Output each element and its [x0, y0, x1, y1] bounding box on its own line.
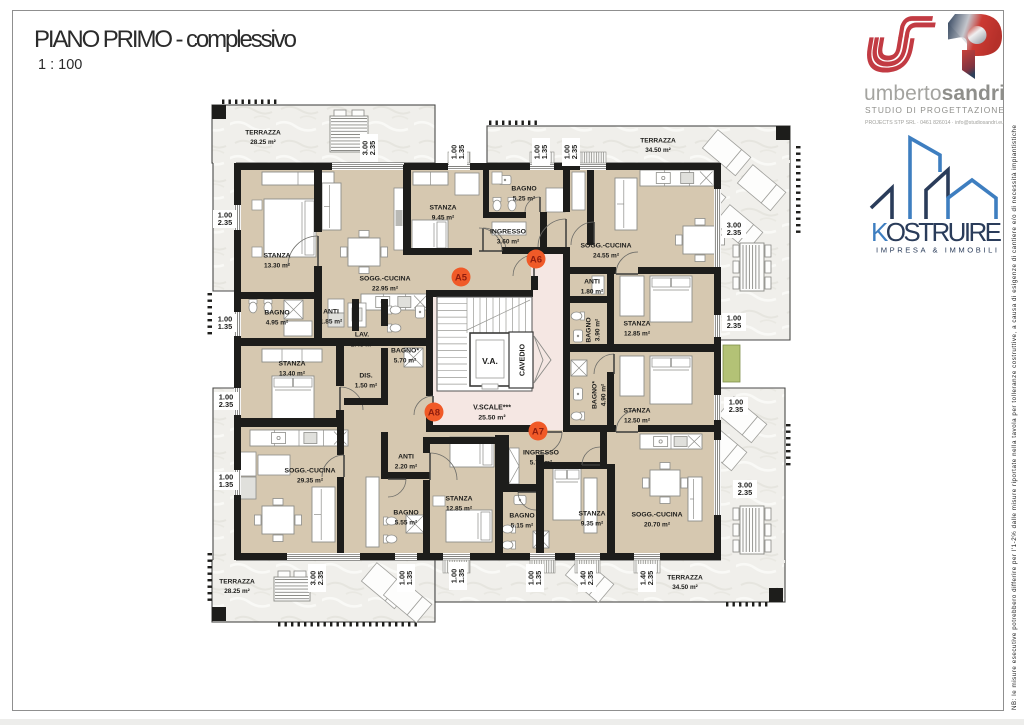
svg-text:5.70 m²: 5.70 m² — [394, 357, 417, 364]
svg-text:umbertosandri: umbertosandri — [864, 82, 1005, 105]
svg-text:BAGNO*: BAGNO* — [591, 381, 598, 409]
svg-text:IMPRESA & IMMOBILI: IMPRESA & IMMOBILI — [876, 246, 997, 255]
svg-text:1 : 100: 1 : 100 — [38, 57, 82, 73]
svg-text:9.45 m²: 9.45 m² — [432, 214, 455, 221]
svg-text:1.85 m²: 1.85 m² — [320, 318, 343, 325]
svg-text:5.55 m²: 5.55 m² — [395, 519, 418, 526]
svg-text:4.90 m²: 4.90 m² — [600, 383, 607, 406]
svg-text:3.90 m²: 3.90 m² — [594, 318, 601, 341]
svg-text:SOGG.-CUCINA: SOGG.-CUCINA — [285, 467, 336, 474]
svg-text:2.35: 2.35 — [219, 400, 233, 409]
svg-text:BAGNO: BAGNO — [585, 317, 592, 342]
svg-text:STUDIO DI PROGETTAZIONE: STUDIO DI PROGETTAZIONE — [865, 105, 1004, 115]
svg-text:STANZA: STANZA — [623, 320, 650, 327]
svg-text:25.50 m²: 25.50 m² — [478, 414, 506, 421]
svg-text:29.35 m²: 29.35 m² — [297, 477, 324, 484]
svg-text:4.95 m²: 4.95 m² — [266, 319, 289, 326]
svg-text:SOGG.-CUCINA: SOGG.-CUCINA — [632, 511, 683, 518]
svg-text:2.35: 2.35 — [646, 571, 655, 585]
svg-text:CAVEDIO: CAVEDIO — [518, 343, 527, 376]
svg-text:A6: A6 — [530, 254, 542, 265]
svg-text:V.SCALE***: V.SCALE*** — [473, 404, 511, 411]
svg-text:12.85 m²: 12.85 m² — [624, 330, 651, 337]
svg-text:ANTI: ANTI — [398, 453, 414, 460]
svg-text:SOGG.-CUCINA: SOGG.-CUCINA — [360, 275, 411, 282]
svg-text:28.25 m²: 28.25 m² — [224, 588, 250, 595]
svg-text:1.35: 1.35 — [457, 145, 466, 159]
svg-text:2.35: 2.35 — [727, 228, 741, 237]
svg-text:5.25 m²: 5.25 m² — [513, 195, 536, 202]
svg-text:28.25 m²: 28.25 m² — [250, 139, 276, 146]
svg-text:A7: A7 — [532, 426, 544, 437]
svg-text:INGRESSO: INGRESSO — [523, 449, 559, 456]
svg-text:9.35 m²: 9.35 m² — [581, 520, 604, 527]
svg-text:2.35: 2.35 — [316, 571, 325, 585]
svg-text:20.70 m²: 20.70 m² — [644, 521, 671, 528]
svg-text:34.50 m²: 34.50 m² — [645, 147, 671, 154]
svg-text:SOGG.-CUCINA: SOGG.-CUCINA — [581, 242, 632, 249]
svg-text:1.35: 1.35 — [540, 145, 549, 159]
svg-text:12.85 m²: 12.85 m² — [446, 505, 473, 512]
svg-text:PIANO PRIMO - complessivo: PIANO PRIMO - complessivo — [34, 26, 297, 53]
svg-text:STANZA: STANZA — [263, 252, 290, 259]
svg-text:1.35: 1.35 — [219, 480, 233, 489]
svg-text:ANTI: ANTI — [584, 278, 600, 285]
svg-text:2.45 m²: 2.45 m² — [351, 341, 374, 348]
svg-text:1.35: 1.35 — [534, 571, 543, 585]
svg-text:TERRAZZA: TERRAZZA — [640, 137, 676, 144]
svg-text:TERRAZZA: TERRAZZA — [667, 574, 703, 581]
svg-text:BAGNO: BAGNO — [511, 185, 536, 192]
svg-text:A8: A8 — [428, 407, 440, 418]
svg-text:22.95 m²: 22.95 m² — [372, 285, 399, 292]
svg-text:2.35: 2.35 — [738, 488, 752, 497]
svg-text:2.20 m²: 2.20 m² — [395, 463, 418, 470]
svg-text:13.30 m²: 13.30 m² — [264, 262, 291, 269]
svg-text:BAGNO: BAGNO — [509, 512, 534, 519]
svg-text:13.40 m²: 13.40 m² — [279, 370, 306, 377]
svg-text:INGRESSO: INGRESSO — [490, 228, 526, 235]
svg-text:3.60 m²: 3.60 m² — [497, 238, 520, 245]
svg-text:2.35: 2.35 — [368, 141, 377, 155]
svg-text:1.35: 1.35 — [457, 569, 466, 583]
svg-text:5.70 m²: 5.70 m² — [530, 459, 553, 466]
svg-text:5.15 m²: 5.15 m² — [511, 522, 534, 529]
svg-text:BAGNO*: BAGNO* — [391, 347, 419, 354]
svg-text:24.55 m²: 24.55 m² — [593, 252, 620, 259]
svg-text:PROJECTS STP SRL · 0461 826014: PROJECTS STP SRL · 0461 826014 · info@st… — [865, 120, 1004, 126]
svg-text:BAGNO: BAGNO — [393, 509, 418, 516]
svg-text:34.50 m²: 34.50 m² — [672, 584, 698, 591]
svg-text:12.50 m²: 12.50 m² — [624, 417, 651, 424]
svg-text:DIS.: DIS. — [359, 372, 372, 379]
svg-text:STANZA: STANZA — [445, 495, 472, 502]
svg-text:2.35: 2.35 — [586, 571, 595, 585]
svg-text:STANZA: STANZA — [578, 510, 605, 517]
svg-text:BAGNO: BAGNO — [264, 309, 289, 316]
svg-text:V.A.: V.A. — [482, 356, 498, 366]
svg-text:2.35: 2.35 — [570, 145, 579, 159]
svg-text:A5: A5 — [455, 272, 468, 283]
svg-text:2.35: 2.35 — [727, 321, 741, 330]
svg-text:1.35: 1.35 — [218, 322, 232, 331]
svg-text:TERRAZZA: TERRAZZA — [219, 578, 255, 585]
svg-text:NB: le misure esecutive potreb: NB: le misure esecutive potrebbero diffe… — [1011, 124, 1018, 710]
svg-text:STANZA: STANZA — [278, 360, 305, 367]
svg-text:ANTI: ANTI — [323, 308, 339, 315]
svg-text:KOSTRUIRE: KOSTRUIRE — [871, 217, 1002, 247]
svg-text:2.35: 2.35 — [218, 218, 232, 227]
svg-text:2.35: 2.35 — [729, 405, 743, 414]
svg-text:TERRAZZA: TERRAZZA — [245, 129, 281, 136]
svg-text:1.80 m²: 1.80 m² — [581, 288, 604, 295]
svg-text:1.50 m²: 1.50 m² — [355, 382, 378, 389]
svg-text:1.35: 1.35 — [405, 571, 414, 585]
svg-text:STANZA: STANZA — [623, 407, 650, 414]
svg-text:STANZA: STANZA — [429, 204, 456, 211]
svg-text:LAV.: LAV. — [355, 331, 369, 338]
